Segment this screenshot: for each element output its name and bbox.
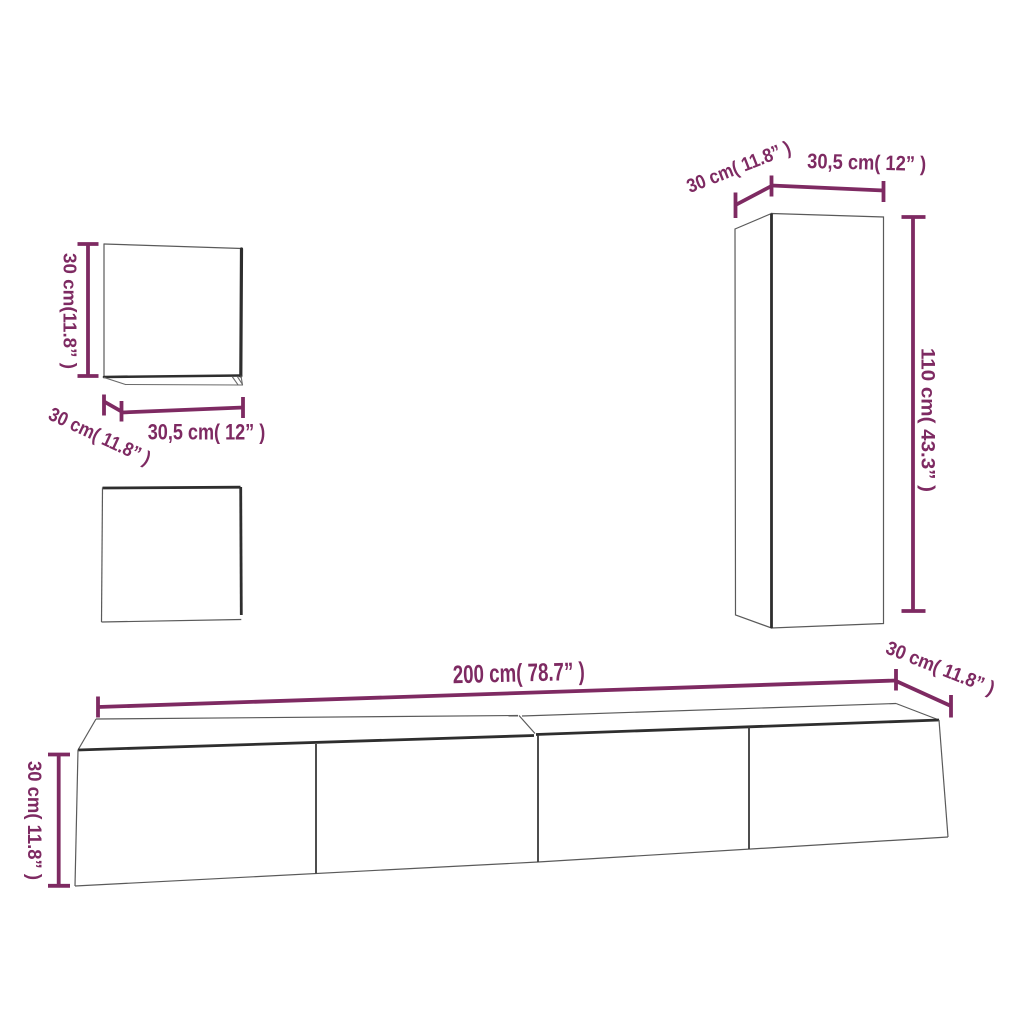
svg-text:30 cm(11.8” ): 30 cm(11.8” )	[60, 253, 81, 369]
svg-text:30,5 cm( 12” ): 30,5 cm( 12” )	[807, 150, 927, 176]
svg-text:110 cm( 43.3” ): 110 cm( 43.3” )	[917, 348, 938, 492]
svg-text:30 cm( 11.8” ): 30 cm( 11.8” )	[23, 761, 44, 880]
svg-text:30,5 cm( 12” ): 30,5 cm( 12” )	[148, 420, 266, 445]
svg-text:200 cm( 78.7” ): 200 cm( 78.7” )	[452, 658, 585, 689]
